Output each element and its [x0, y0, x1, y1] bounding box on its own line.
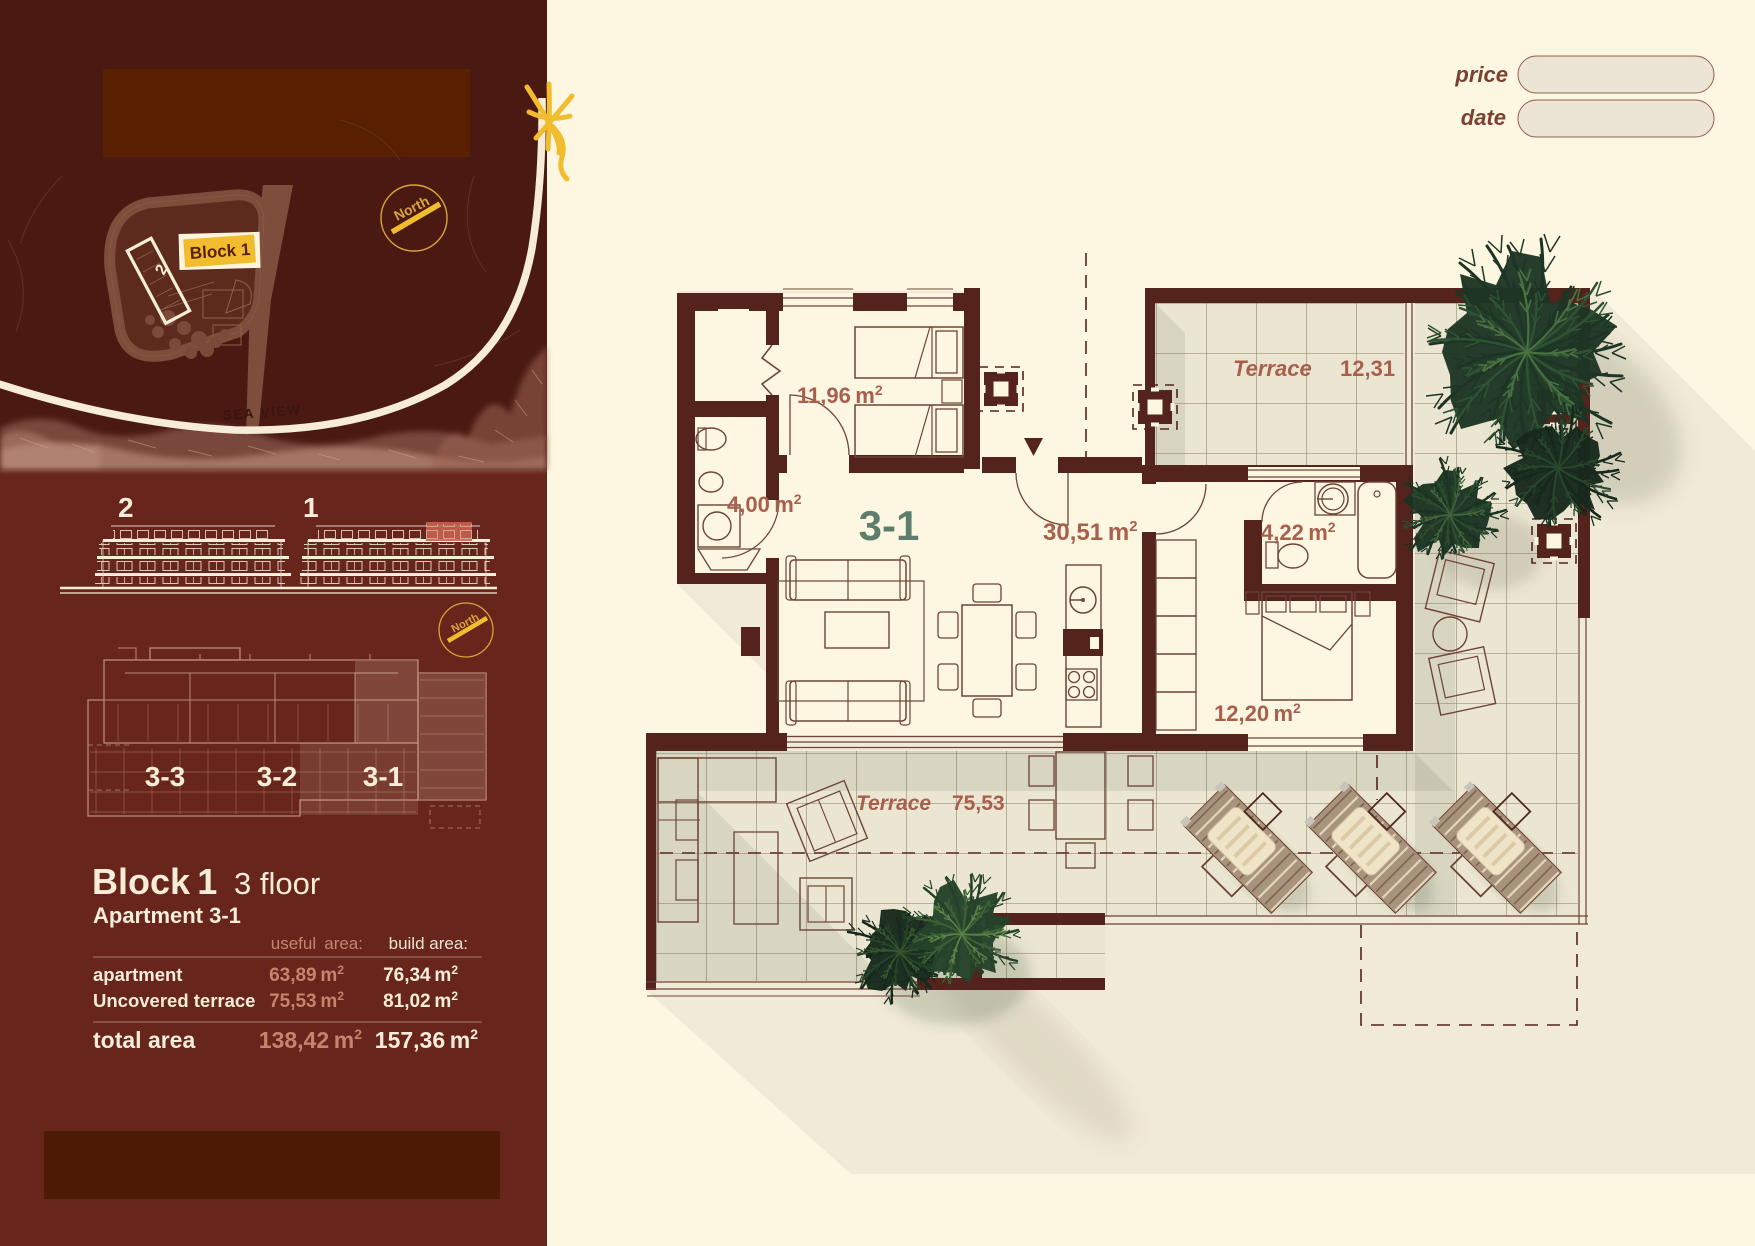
svg-text:4,22 m2: 4,22 m2 — [1261, 519, 1336, 545]
svg-text:total area: total area — [93, 1027, 195, 1053]
svg-text:Block 1: Block 1 — [92, 861, 217, 902]
svg-text:75,53 m2: 75,53 m2 — [269, 989, 344, 1012]
svg-text:81,02 m2: 81,02 m2 — [383, 989, 458, 1012]
svg-text:Apartment 3-1: Apartment 3-1 — [93, 903, 241, 928]
svg-text:3 floor: 3 floor — [234, 866, 320, 901]
svg-text:157,36 m2: 157,36 m2 — [375, 1026, 478, 1053]
svg-text:date: date — [1461, 105, 1506, 130]
svg-text:12,31: 12,31 — [1340, 356, 1395, 381]
svg-text:4,00 m2: 4,00 m2 — [727, 491, 802, 517]
svg-text:3-1: 3-1 — [363, 761, 403, 792]
svg-text:apartment: apartment — [93, 964, 182, 985]
svg-text:12,20 m2: 12,20 m2 — [1214, 700, 1301, 726]
svg-text:30,51 m2: 30,51 m2 — [1043, 518, 1138, 546]
svg-text:build area:: build area: — [389, 934, 468, 953]
svg-text:63,89 m2: 63,89 m2 — [269, 963, 344, 986]
svg-text:75,53: 75,53 — [952, 792, 1005, 815]
svg-text:11,96 m2: 11,96 m2 — [797, 382, 883, 408]
svg-text:1: 1 — [303, 492, 319, 523]
svg-text:3-2: 3-2 — [257, 761, 297, 792]
svg-text:138,42 m2: 138,42 m2 — [259, 1026, 362, 1053]
svg-text:3-3: 3-3 — [145, 761, 185, 792]
svg-text:2: 2 — [118, 492, 134, 523]
svg-text:useful area:: useful area: — [271, 934, 363, 953]
svg-text:Terrace: Terrace — [1233, 356, 1312, 381]
svg-text:Terrace: Terrace — [856, 792, 931, 815]
svg-text:76,34 m2: 76,34 m2 — [383, 963, 458, 986]
svg-text:price: price — [1454, 62, 1508, 87]
svg-text:Uncovered terrace: Uncovered terrace — [93, 990, 255, 1011]
svg-text:3-1: 3-1 — [859, 502, 920, 549]
